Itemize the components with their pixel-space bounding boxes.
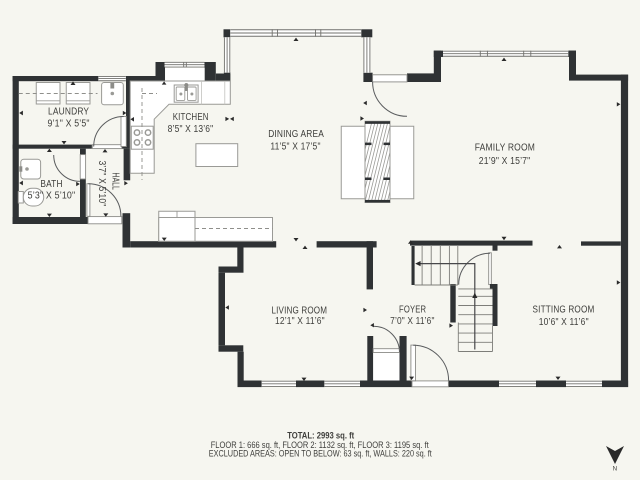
svg-text:TOTAL: 2993 sq. ft: TOTAL: 2993 sq. ft bbox=[287, 430, 354, 440]
svg-text:FOYER: FOYER bbox=[399, 304, 426, 315]
svg-text:N: N bbox=[613, 465, 617, 472]
svg-text:10’6" X 11’6": 10’6" X 11’6" bbox=[539, 317, 589, 328]
svg-text:FAMILY ROOM: FAMILY ROOM bbox=[475, 143, 535, 154]
svg-text:SITTING ROOM: SITTING ROOM bbox=[533, 304, 595, 315]
svg-text:DINING AREA: DINING AREA bbox=[268, 129, 324, 140]
svg-text:9’1" X 5’5": 9’1" X 5’5" bbox=[48, 118, 90, 129]
svg-text:5’3" X 5’10": 5’3" X 5’10" bbox=[28, 190, 76, 201]
svg-text:EXCLUDED AREAS: OPEN TO BELOW:: EXCLUDED AREAS: OPEN TO BELOW: 63 sq. ft… bbox=[209, 449, 432, 459]
svg-text:12’1" X 11’6": 12’1" X 11’6" bbox=[275, 316, 325, 327]
svg-text:LIVING ROOM: LIVING ROOM bbox=[271, 306, 327, 317]
svg-text:8’5" X 13’6": 8’5" X 13’6" bbox=[168, 124, 214, 135]
svg-text:7’0" X 11’6": 7’0" X 11’6" bbox=[390, 316, 435, 327]
svg-text:LAUNDRY: LAUNDRY bbox=[48, 106, 89, 117]
svg-text:11’5" X 17’5": 11’5" X 17’5" bbox=[270, 141, 321, 152]
svg-text:21’9" X 15’7": 21’9" X 15’7" bbox=[479, 156, 531, 167]
svg-text:BATH: BATH bbox=[40, 179, 62, 190]
svg-text:KITCHEN: KITCHEN bbox=[173, 112, 209, 123]
svg-text:3’7" X 5’10": 3’7" X 5’10" bbox=[96, 161, 107, 207]
svg-text:HALL: HALL bbox=[109, 173, 120, 191]
